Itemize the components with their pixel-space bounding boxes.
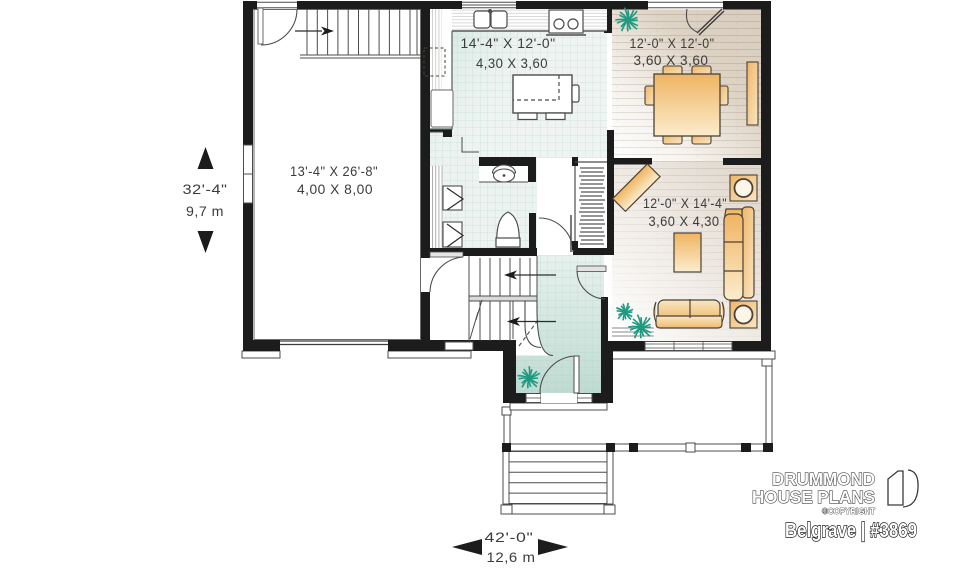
svg-text:14'-4" X 12'-0": 14'-4" X 12'-0": [461, 35, 556, 51]
svg-text:12'-0" X 12'-0": 12'-0" X 12'-0": [630, 35, 715, 51]
svg-text:HOUSE PLANS: HOUSE PLANS: [752, 487, 875, 507]
svg-text:©COPYRIGHT: ©COPYRIGHT: [822, 506, 876, 516]
svg-text:12'-0" X 14'-4": 12'-0" X 14'-4": [643, 195, 727, 211]
svg-text:32'-4": 32'-4": [183, 181, 228, 197]
svg-text:3,60 X 4,30: 3,60 X 4,30: [649, 213, 720, 229]
svg-text:4,30 X 3,60: 4,30 X 3,60: [476, 55, 548, 71]
svg-text:9,7 m: 9,7 m: [186, 203, 224, 219]
svg-text:42'-0": 42'-0": [485, 529, 534, 545]
svg-text:13'-4" X 26'-8": 13'-4" X 26'-8": [290, 163, 378, 179]
svg-text:4,00 X 8,00: 4,00 X 8,00: [297, 181, 373, 197]
svg-text:Belgrave | #3869: Belgrave | #3869: [785, 520, 917, 542]
svg-text:DRUMMOND: DRUMMOND: [772, 469, 875, 489]
svg-text:3,60 X 3,60: 3,60 X 3,60: [634, 52, 709, 68]
svg-text:12,6 m: 12,6 m: [487, 549, 536, 565]
